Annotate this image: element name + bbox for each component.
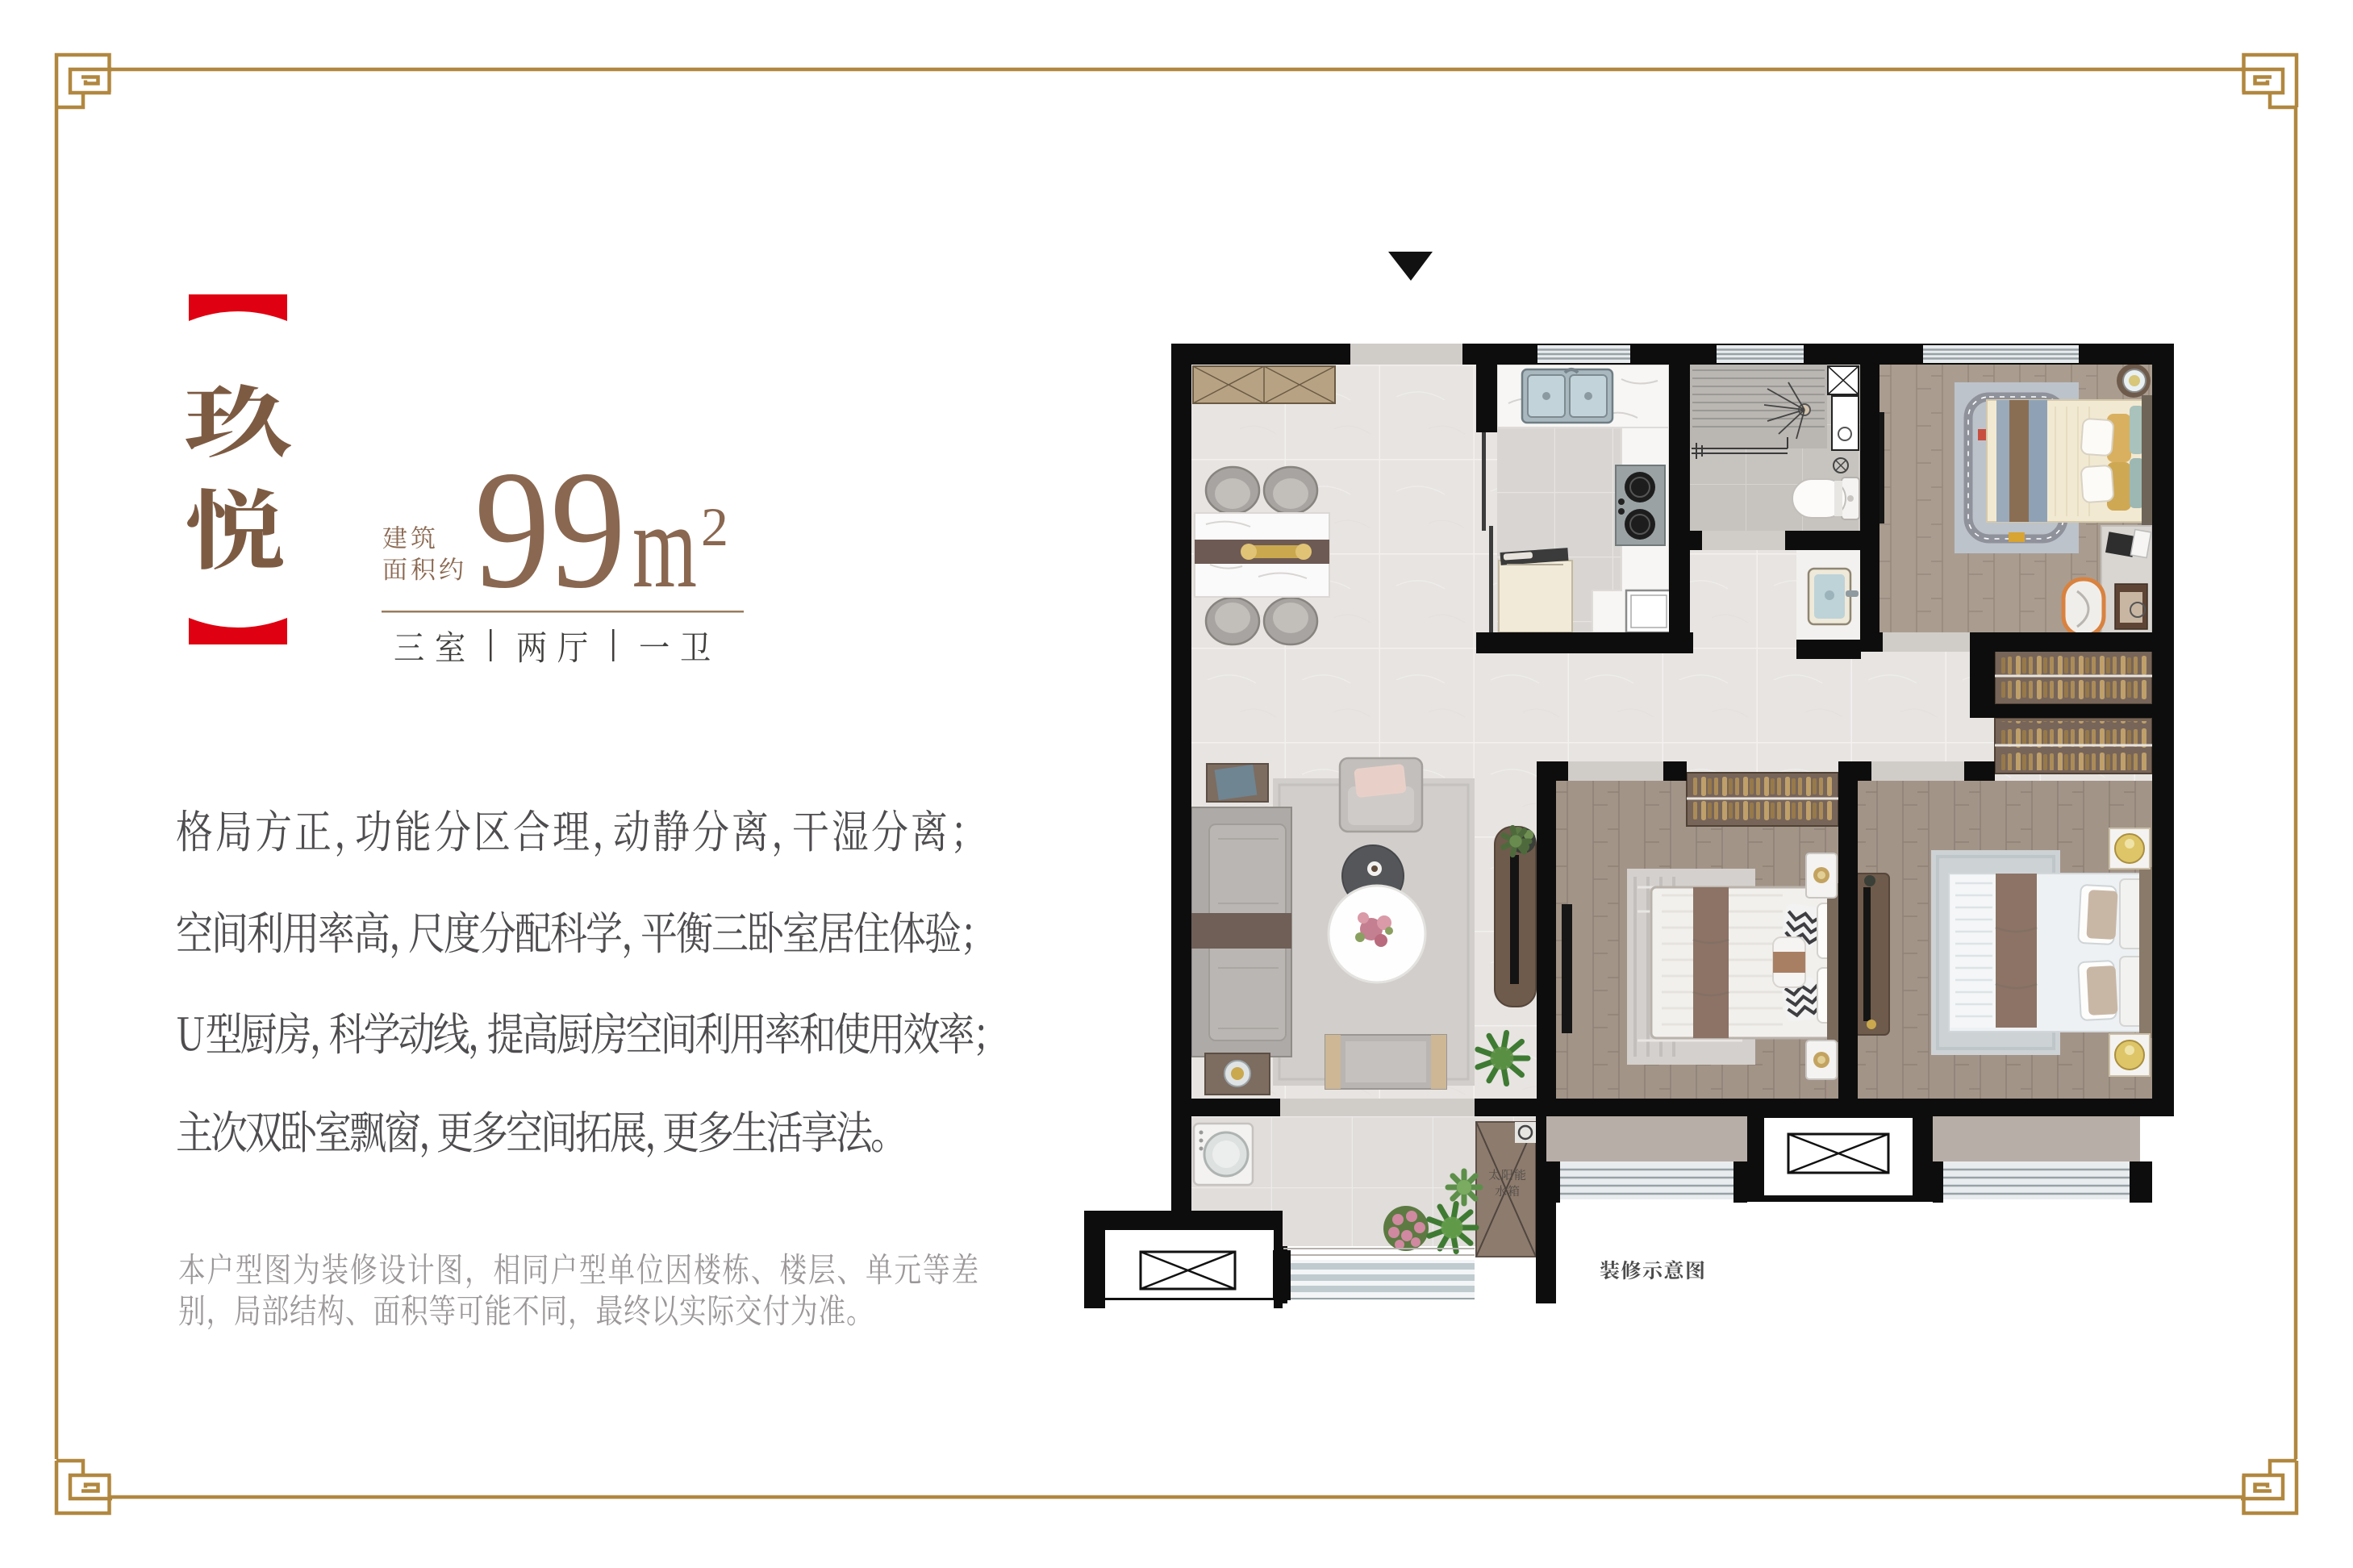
svg-text:m: m [632,479,697,613]
svg-text:99: 99 [474,436,626,623]
svg-text:2: 2 [701,496,728,557]
